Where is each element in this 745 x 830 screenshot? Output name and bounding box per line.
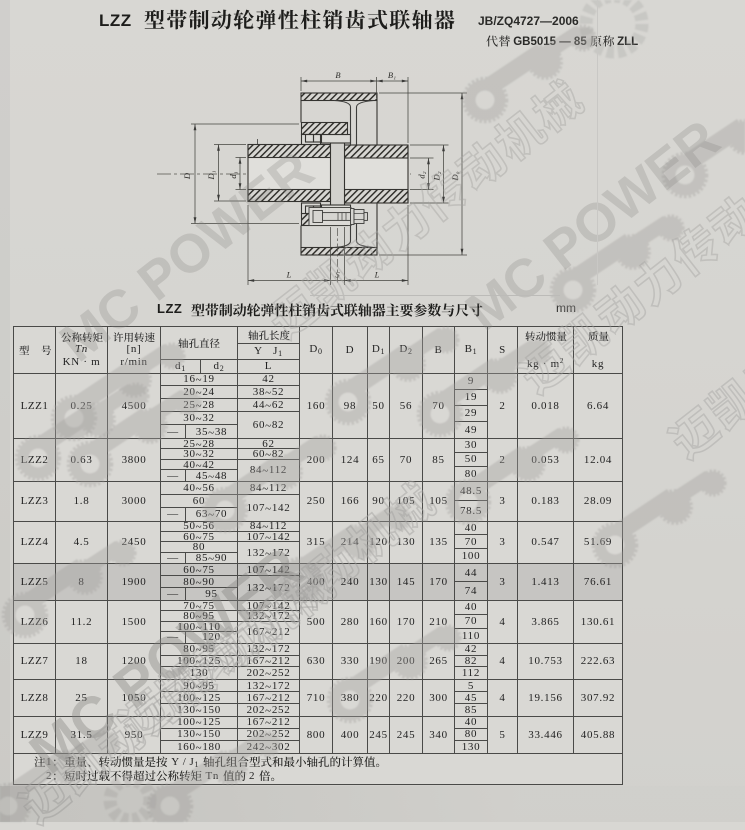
svg-text:d₂: d₂ <box>417 171 427 178</box>
svg-text:L: L <box>286 270 292 280</box>
svg-text:D: D <box>182 172 192 180</box>
svg-text:B: B <box>335 70 340 80</box>
svg-text:B₁: B₁ <box>388 70 396 80</box>
svg-text:d₁: d₁ <box>228 171 238 178</box>
svg-text:D₁: D₁ <box>206 170 216 180</box>
